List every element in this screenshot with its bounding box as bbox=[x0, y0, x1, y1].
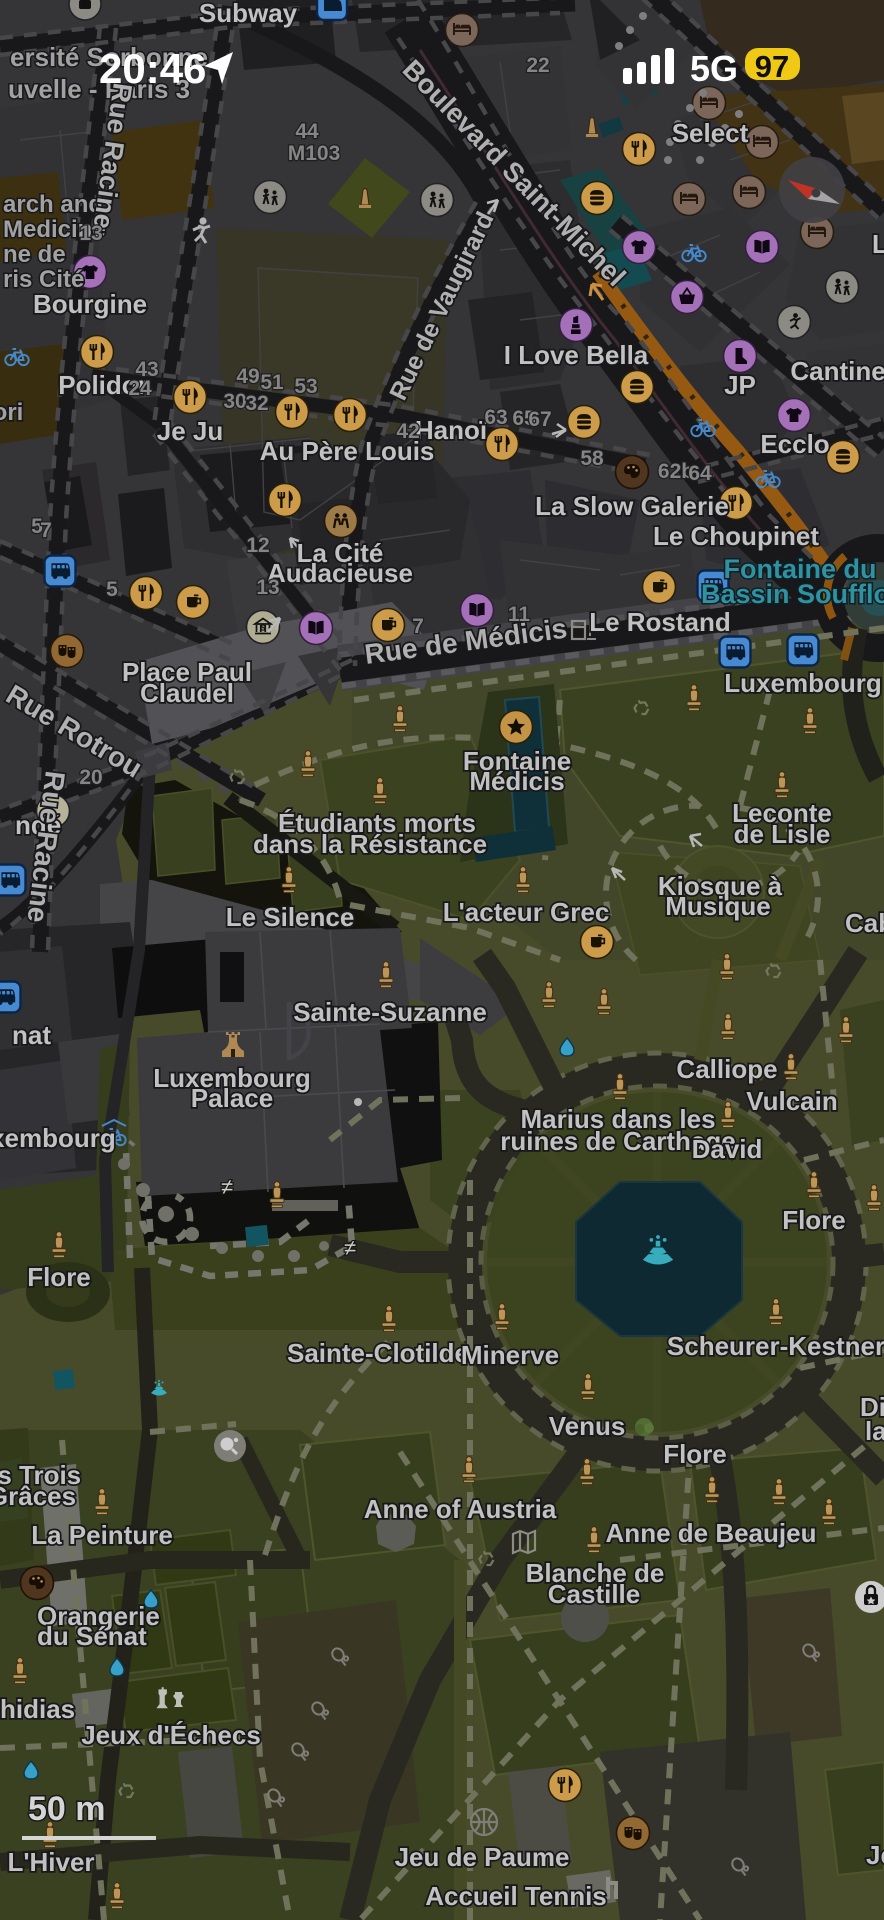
svg-text:20:46: 20:46 bbox=[99, 45, 206, 92]
svg-text:5G: 5G bbox=[690, 48, 738, 89]
svg-text:97: 97 bbox=[755, 49, 789, 84]
